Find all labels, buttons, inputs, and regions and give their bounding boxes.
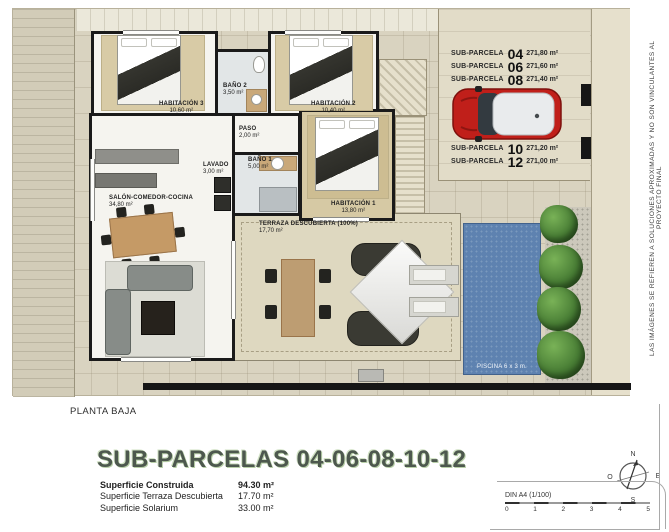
legend-area: 271,80 m² [526, 50, 558, 57]
room-label-lavado: LAVADO 3,00 m² [203, 162, 229, 176]
pillow [121, 38, 147, 47]
chair [174, 227, 185, 238]
room-name: SALÓN-COMEDOR-COCINA [109, 195, 193, 202]
room-label-habitacion-1: HABITACIÓN 1 13,80 m² [331, 201, 376, 215]
dryer-icon [214, 195, 231, 211]
dining-table [109, 212, 177, 258]
parcel-boundary-wall [143, 383, 631, 390]
legend-area: 271,40 m² [526, 76, 558, 83]
front-walkway [76, 9, 438, 31]
outdoor-table [281, 259, 315, 337]
pool-equipment [358, 369, 384, 382]
outdoor-chair [319, 269, 331, 283]
legend-label: SUB-PARCELA [451, 158, 504, 165]
pillow [293, 38, 319, 47]
legend-group-top: SUB-PARCELA 04 271,80 m² SUB-PARCELA 06 … [451, 47, 591, 86]
legend-label: SUB-PARCELA [451, 50, 504, 57]
room-name: HABITACIÓN 2 [311, 101, 356, 108]
bush-icon [537, 287, 581, 331]
compass-west-label: O [607, 474, 613, 481]
room-area: 3,50 m² [223, 90, 247, 97]
surface-value: 17.70 m² [238, 491, 274, 501]
drawing-sheet: SUB-PARCELA 04 271,80 m² SUB-PARCELA 06 … [0, 0, 669, 532]
car-icon [451, 85, 563, 143]
room-label-terraza: TERRAZA DESCUBIERTA (100%) 17,70 m² [259, 221, 358, 235]
toilet-icon [253, 56, 265, 73]
shower [259, 187, 297, 212]
surface-label: Superficie Solarium [100, 503, 238, 513]
washer-icon [214, 177, 231, 193]
room-name: BAÑO 1 [248, 157, 272, 164]
sofa [127, 265, 193, 291]
room-label-salon: SALÓN-COMEDOR-COCINA 34,80 m² [109, 195, 193, 209]
room-label-habitacion-3: HABITACIÓN 3 10,60 m² [159, 101, 204, 115]
surface-table: Superficie Construida 94.30 m² Superfici… [100, 479, 274, 514]
pool: PISCINA 6 x 3 m. [463, 223, 541, 375]
coffee-table [141, 301, 175, 335]
room-name: HABITACIÓN 1 [331, 201, 376, 208]
surface-label: Superficie Construida [100, 480, 238, 490]
frame-corner [497, 481, 666, 529]
page-title: SUB-PARCELAS 04-06-08-10-12 [97, 446, 466, 474]
surface-row: Superficie Construida 94.30 m² [100, 479, 274, 491]
room-area: 13,80 m² [331, 208, 376, 215]
outdoor-chair [265, 269, 277, 283]
outdoor-chair [265, 305, 277, 319]
pillow [319, 120, 345, 129]
sofa [105, 289, 131, 355]
room-label-bano-1: BAÑO 1 5,00 m² [248, 157, 272, 171]
pillow [323, 38, 349, 47]
side-road-strip [591, 9, 630, 395]
surface-value: 33.00 m² [238, 503, 274, 513]
kitchen-counter [95, 149, 179, 164]
bush-icon [537, 331, 585, 379]
bush-icon [539, 245, 583, 289]
sun-lounger [409, 297, 459, 317]
sun-lounger [409, 265, 459, 285]
pergola-hatch [379, 59, 427, 116]
bed [315, 117, 379, 191]
room-area: 10,40 m² [311, 108, 356, 115]
room-name: PASO [239, 126, 259, 133]
legend-area: 271,60 m² [526, 63, 558, 70]
boundary-wall-stub [581, 84, 591, 106]
room-name: BAÑO 2 [223, 83, 247, 90]
legend-area: 271,20 m² [526, 145, 558, 152]
legend-area: 271,00 m² [526, 158, 558, 165]
pool-label: PISCINA 6 x 3 m. [464, 364, 540, 370]
pillow [349, 120, 375, 129]
kitchen-island [95, 173, 157, 188]
room-area: 5,00 m² [248, 164, 272, 171]
sliding-door [231, 241, 236, 319]
room-label-habitacion-2: HABITACIÓN 2 10,40 m² [311, 101, 356, 115]
bed [117, 35, 181, 105]
sliding-door [121, 357, 191, 362]
room-label-paso: PASO 2,00 m² [239, 126, 259, 140]
bed [289, 35, 353, 105]
room-area: 3,00 m² [203, 169, 229, 176]
window [90, 159, 95, 221]
pillow [151, 38, 177, 47]
room-area: 10,60 m² [159, 108, 204, 115]
room-name: TERRAZA DESCUBIERTA (100%) [259, 221, 358, 228]
surface-label: Superficie Terraza Descubierta [100, 491, 238, 501]
legend-label: SUB-PARCELA [451, 76, 504, 83]
frame-line [490, 529, 660, 530]
legend-item-12: SUB-PARCELA 12 271,00 m² [451, 155, 591, 168]
room-label-bano-2: BAÑO 2 3,50 m² [223, 83, 247, 97]
floor-plan: SUB-PARCELA 04 271,80 m² SUB-PARCELA 06 … [12, 8, 630, 396]
legend-label: SUB-PARCELA [451, 145, 504, 152]
bush-icon [540, 205, 578, 243]
disclaimer-text: LAS IMÁGENES SE REFIEREN A SOLUCIONES AP… [649, 28, 663, 368]
neighbor-parcel-strip [13, 9, 75, 397]
room-area: 17,70 m² [259, 228, 358, 235]
surface-value: 94.30 m² [238, 480, 274, 490]
room-area: 2,00 m² [239, 133, 259, 140]
room-name: HABITACIÓN 3 [159, 101, 204, 108]
legend-group-bottom: SUB-PARCELA 10 271,20 m² SUB-PARCELA 12 … [451, 142, 591, 168]
surface-row: Superficie Solarium 33.00 m² [100, 502, 274, 514]
sink-icon [251, 94, 262, 105]
legend-number: 12 [508, 154, 524, 170]
sink-icon [271, 157, 284, 170]
legend-label: SUB-PARCELA [451, 63, 504, 70]
floor-label: PLANTA BAJA [70, 406, 137, 417]
surface-row: Superficie Terraza Descubierta 17.70 m² [100, 491, 274, 503]
outdoor-chair [319, 305, 331, 319]
room-area: 34,80 m² [109, 202, 193, 209]
compass-north-label: N [630, 451, 635, 458]
room-name: LAVADO [203, 162, 229, 169]
deck-strip [395, 116, 425, 221]
